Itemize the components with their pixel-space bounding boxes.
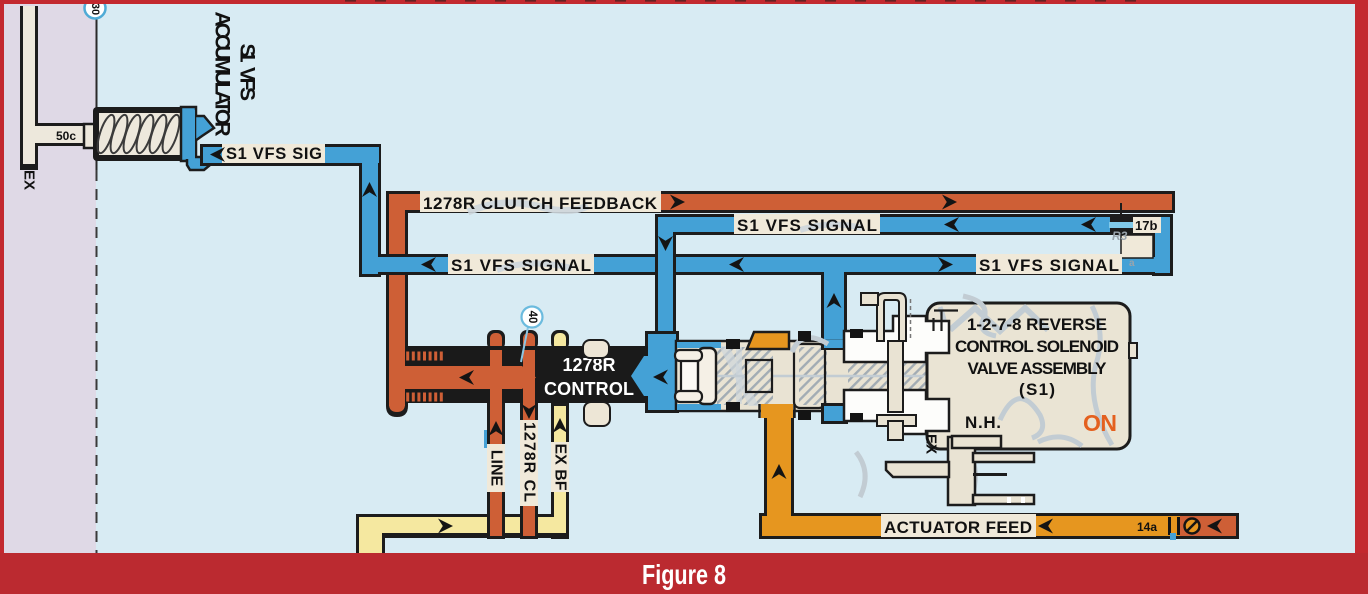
svg-text:CONTROL: CONTROL — [544, 379, 634, 399]
svg-text:S1 VFS SIGNAL: S1 VFS SIGNAL — [451, 256, 591, 275]
svg-text:40: 40 — [526, 311, 538, 324]
svg-text:N.H.: N.H. — [965, 413, 1001, 432]
svg-text:30: 30 — [89, 3, 101, 15]
svg-text:a: a — [1129, 258, 1135, 269]
svg-text:LINE: LINE — [488, 450, 505, 487]
svg-text:EX BF: EX BF — [552, 443, 569, 490]
svg-text:EX: EX — [21, 170, 38, 190]
svg-text:VFS: VFS — [236, 67, 259, 101]
svg-text:ON: ON — [1083, 410, 1117, 436]
svg-text:S1 VFS SIG: S1 VFS SIG — [226, 145, 322, 163]
svg-text:(S1): (S1) — [1019, 380, 1055, 399]
svg-text:1278R CLUTCH FEEDBACK: 1278R CLUTCH FEEDBACK — [423, 194, 658, 213]
svg-text:ACCUMULATOR: ACCUMULATOR — [211, 12, 234, 137]
svg-text:EX: EX — [923, 434, 940, 454]
svg-text:50c: 50c — [56, 129, 76, 143]
svg-text:Figure 8: Figure 8 — [642, 559, 726, 590]
svg-text:S1 VFS SIGNAL: S1 VFS SIGNAL — [979, 256, 1119, 275]
svg-text:ACTUATOR FEED: ACTUATOR FEED — [884, 518, 1032, 537]
svg-text:17b: 17b — [1135, 218, 1157, 233]
svg-text:1-2-7-8 REVERSE: 1-2-7-8 REVERSE — [967, 315, 1107, 334]
svg-text:CONTROL SOLENOID: CONTROL SOLENOID — [955, 337, 1119, 356]
svg-text:R3: R3 — [1112, 229, 1128, 243]
svg-text:14a: 14a — [1137, 520, 1157, 534]
svg-text:VALVE ASSEMBLY: VALVE ASSEMBLY — [968, 359, 1108, 378]
svg-text:1278R CL: 1278R CL — [521, 422, 538, 502]
svg-text:S1: S1 — [236, 44, 259, 63]
svg-text:S1 VFS SIGNAL: S1 VFS SIGNAL — [737, 216, 877, 235]
